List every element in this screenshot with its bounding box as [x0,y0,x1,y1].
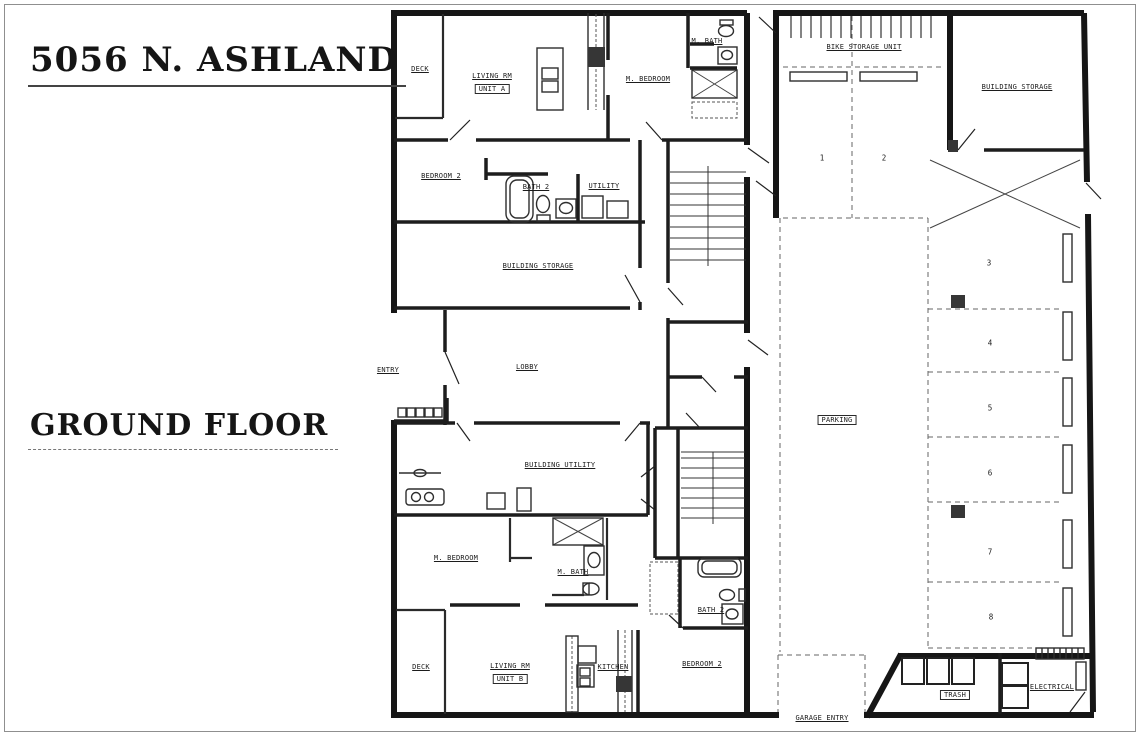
label-unit-b-bedroom-2: BEDROOM 2 [682,660,722,668]
label-unit-a: UNIT A [475,84,510,94]
label-unit-b-deck: DECK [412,663,430,671]
label-unit-a-living: LIVING RM [472,72,512,80]
parking-stall-number-1: 1 [820,154,825,163]
label-unit-b-living: LIVING RM [490,662,530,670]
label-unit-b-m-bath: M. BATH [558,568,589,576]
label-unit-a-bath-2: BATH 2 [523,183,550,191]
label-unit-a-m-bedroom: M. BEDROOM [626,75,670,83]
plan-title: 5056 N. ASHLAND [28,40,406,87]
label-unit-a-deck: DECK [411,65,429,73]
label-trash: TRASH [940,690,970,700]
label-building-utility: BUILDING UTILITY [525,461,596,469]
label-unit-a-utility: UTILITY [589,182,620,190]
parking-stall-number-2: 2 [882,154,887,163]
label-unit-a-m-bath: M. BATH [692,37,723,45]
label-building-storage-north: BUILDING STORAGE [503,262,574,270]
parking-stall-number-4: 4 [988,339,993,348]
floor-title: GROUND FLOOR [28,408,338,450]
floor-plan-page: 5056 N. ASHLAND GROUND FLOOR DECK LIVING… [0,0,1140,736]
label-garage-entry: GARAGE ENTRY [796,714,849,722]
floor-plan-drawing [0,0,1140,736]
parking-stall-number-3: 3 [987,259,992,268]
parking-stall-number-7: 7 [988,548,993,557]
label-lobby: LOBBY [516,363,538,371]
label-bike-storage: BIKE STORAGE UNIT [826,43,901,51]
parking-stall-number-8: 8 [989,613,994,622]
label-unit-b-kitchen: KITCHEN [598,663,629,671]
label-unit-a-bedroom-2: BEDROOM 2 [421,172,461,180]
label-unit-b-bath-2: BATH 2 [698,606,725,614]
parking-stall-number-5: 5 [988,404,993,413]
label-unit-b: UNIT B [493,674,528,684]
label-building-storage-east: BUILDING STORAGE [982,83,1053,91]
label-parking: PARKING [818,415,857,425]
label-electrical: ELECTRICAL [1030,683,1074,691]
parking-stall-number-6: 6 [988,469,993,478]
label-entry: ENTRY [377,366,399,374]
label-unit-b-m-bedroom: M. BEDROOM [434,554,478,562]
